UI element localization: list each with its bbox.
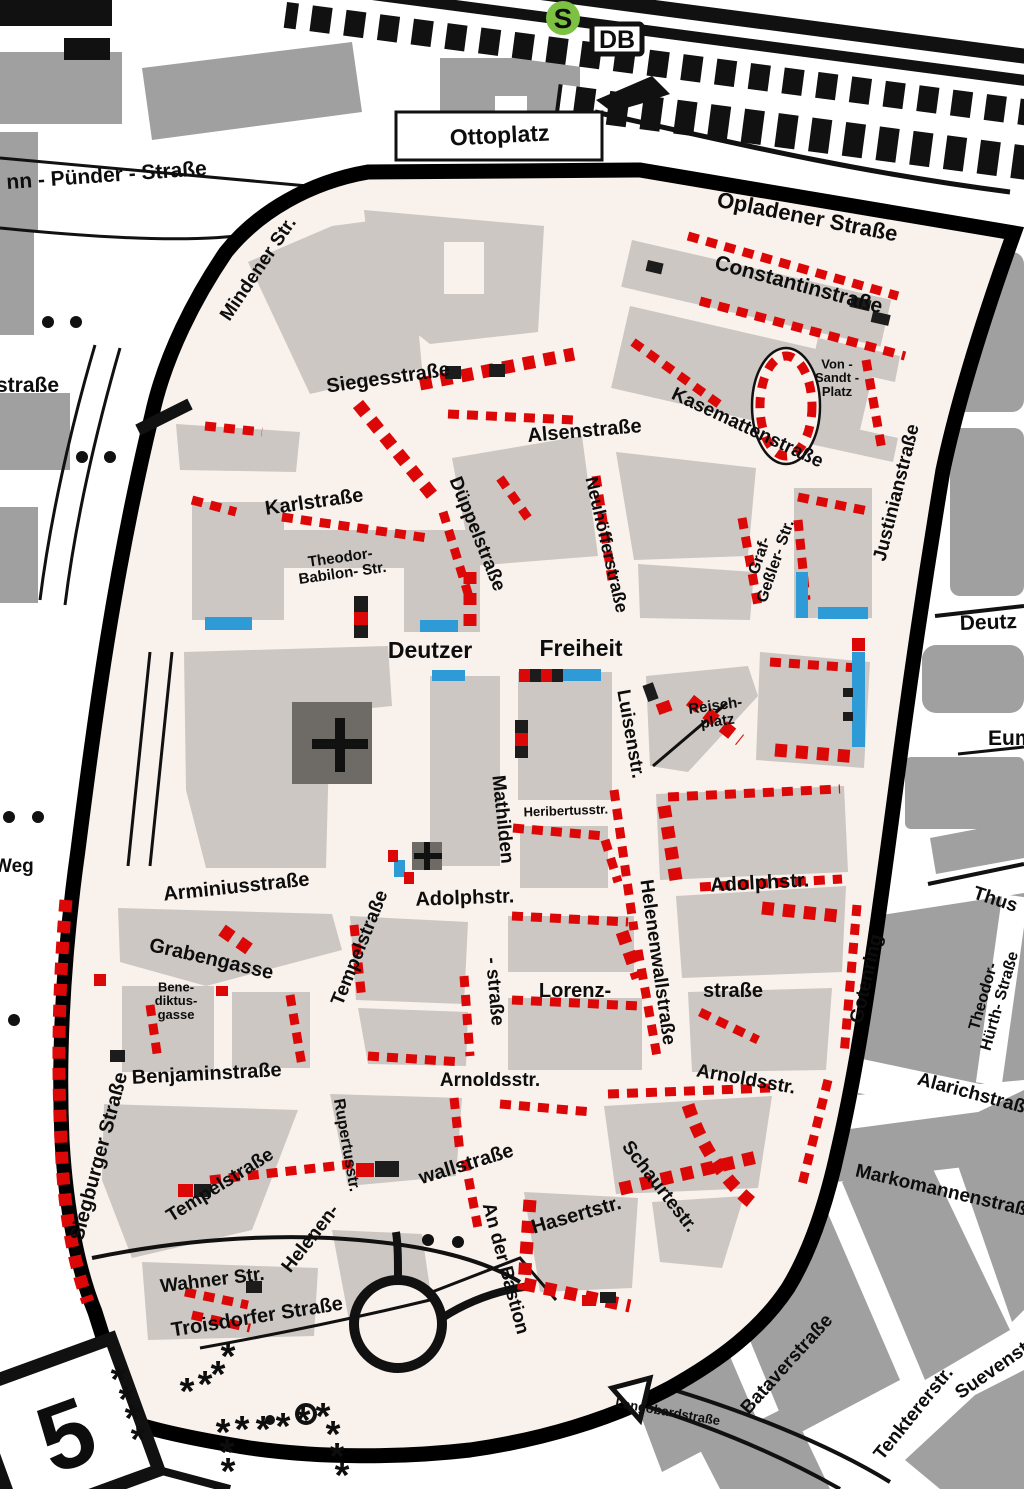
street-label-arnoldsstr-left: Arnoldsstr. [440,1070,540,1091]
no-parking-asterisk-icon: * [131,1419,146,1461]
svg-text:Freiheit: Freiheit [539,635,622,661]
district-parking-map: S DB 5 Ottoplatznn - Pünder - StraßeMind… [0,0,1024,1489]
street-label-eum-right: Eum [988,727,1024,750]
no-parking-asterisk-icon: * [276,1406,291,1448]
map-stage: S DB 5 Ottoplatznn - Pünder - StraßeMind… [0,0,1024,1489]
svg-text:Eum: Eum [988,727,1024,750]
street-label-lorenz: Lorenz- [539,980,611,1002]
street-label-freiheit: Freiheit [539,635,622,661]
street-label-straße-left: straße [0,374,59,397]
svg-text:Heribertusstr.: Heribertusstr. [523,802,608,820]
svg-text:Ottoplatz: Ottoplatz [449,119,550,150]
street-label-deutz-right: Deutz [959,610,1017,635]
svg-text:Bene-diktus-gasse: Bene-diktus-gasse [155,979,198,1021]
no-parking-asterisk-icon: * [180,1371,195,1413]
church-icon [292,702,372,784]
s-bahn-label: S [554,3,573,34]
street-label-benediktusgasse: Bene-diktus-gasse [155,979,198,1021]
svg-text:straße: straße [0,374,59,397]
no-parking-asterisk-icon: * [198,1364,213,1406]
svg-text:Weg: Weg [0,856,34,877]
svg-text:Lorenz-: Lorenz- [539,980,611,1002]
svg-text:straße: straße [703,980,763,1002]
s-bahn-logo: S [546,1,580,35]
street-label-lorenz-straße2: straße [703,980,763,1002]
street-label-adolphstr-left: Adolphstr. [415,885,515,910]
no-parking-asterisk-icon: * [256,1409,271,1451]
svg-text:Deutzer: Deutzer [388,637,472,663]
roundabout [354,1280,442,1368]
db-logo: DB [592,24,642,54]
no-parking-asterisk-icon: * [211,1354,226,1396]
street-label-ottoplatz: Ottoplatz [449,119,550,150]
svg-text:Adolphstr.: Adolphstr. [415,885,515,910]
svg-text:Deutz: Deutz [959,610,1017,635]
street-label-weg-left: Weg [0,856,34,877]
svg-text:Arnoldsstr.: Arnoldsstr. [440,1070,540,1091]
no-parking-asterisk-icon: * [235,1409,250,1451]
db-label: DB [599,26,635,54]
no-parking-asterisk-icon: * [221,1451,236,1489]
street-label-deutzer: Deutzer [388,637,472,663]
chapel-icon [412,842,442,870]
street-label-heribertusstr: Heribertusstr. [523,802,608,820]
no-parking-asterisk-icon: * [335,1455,350,1489]
no-parking-asterisk-icon: * [296,1400,311,1442]
